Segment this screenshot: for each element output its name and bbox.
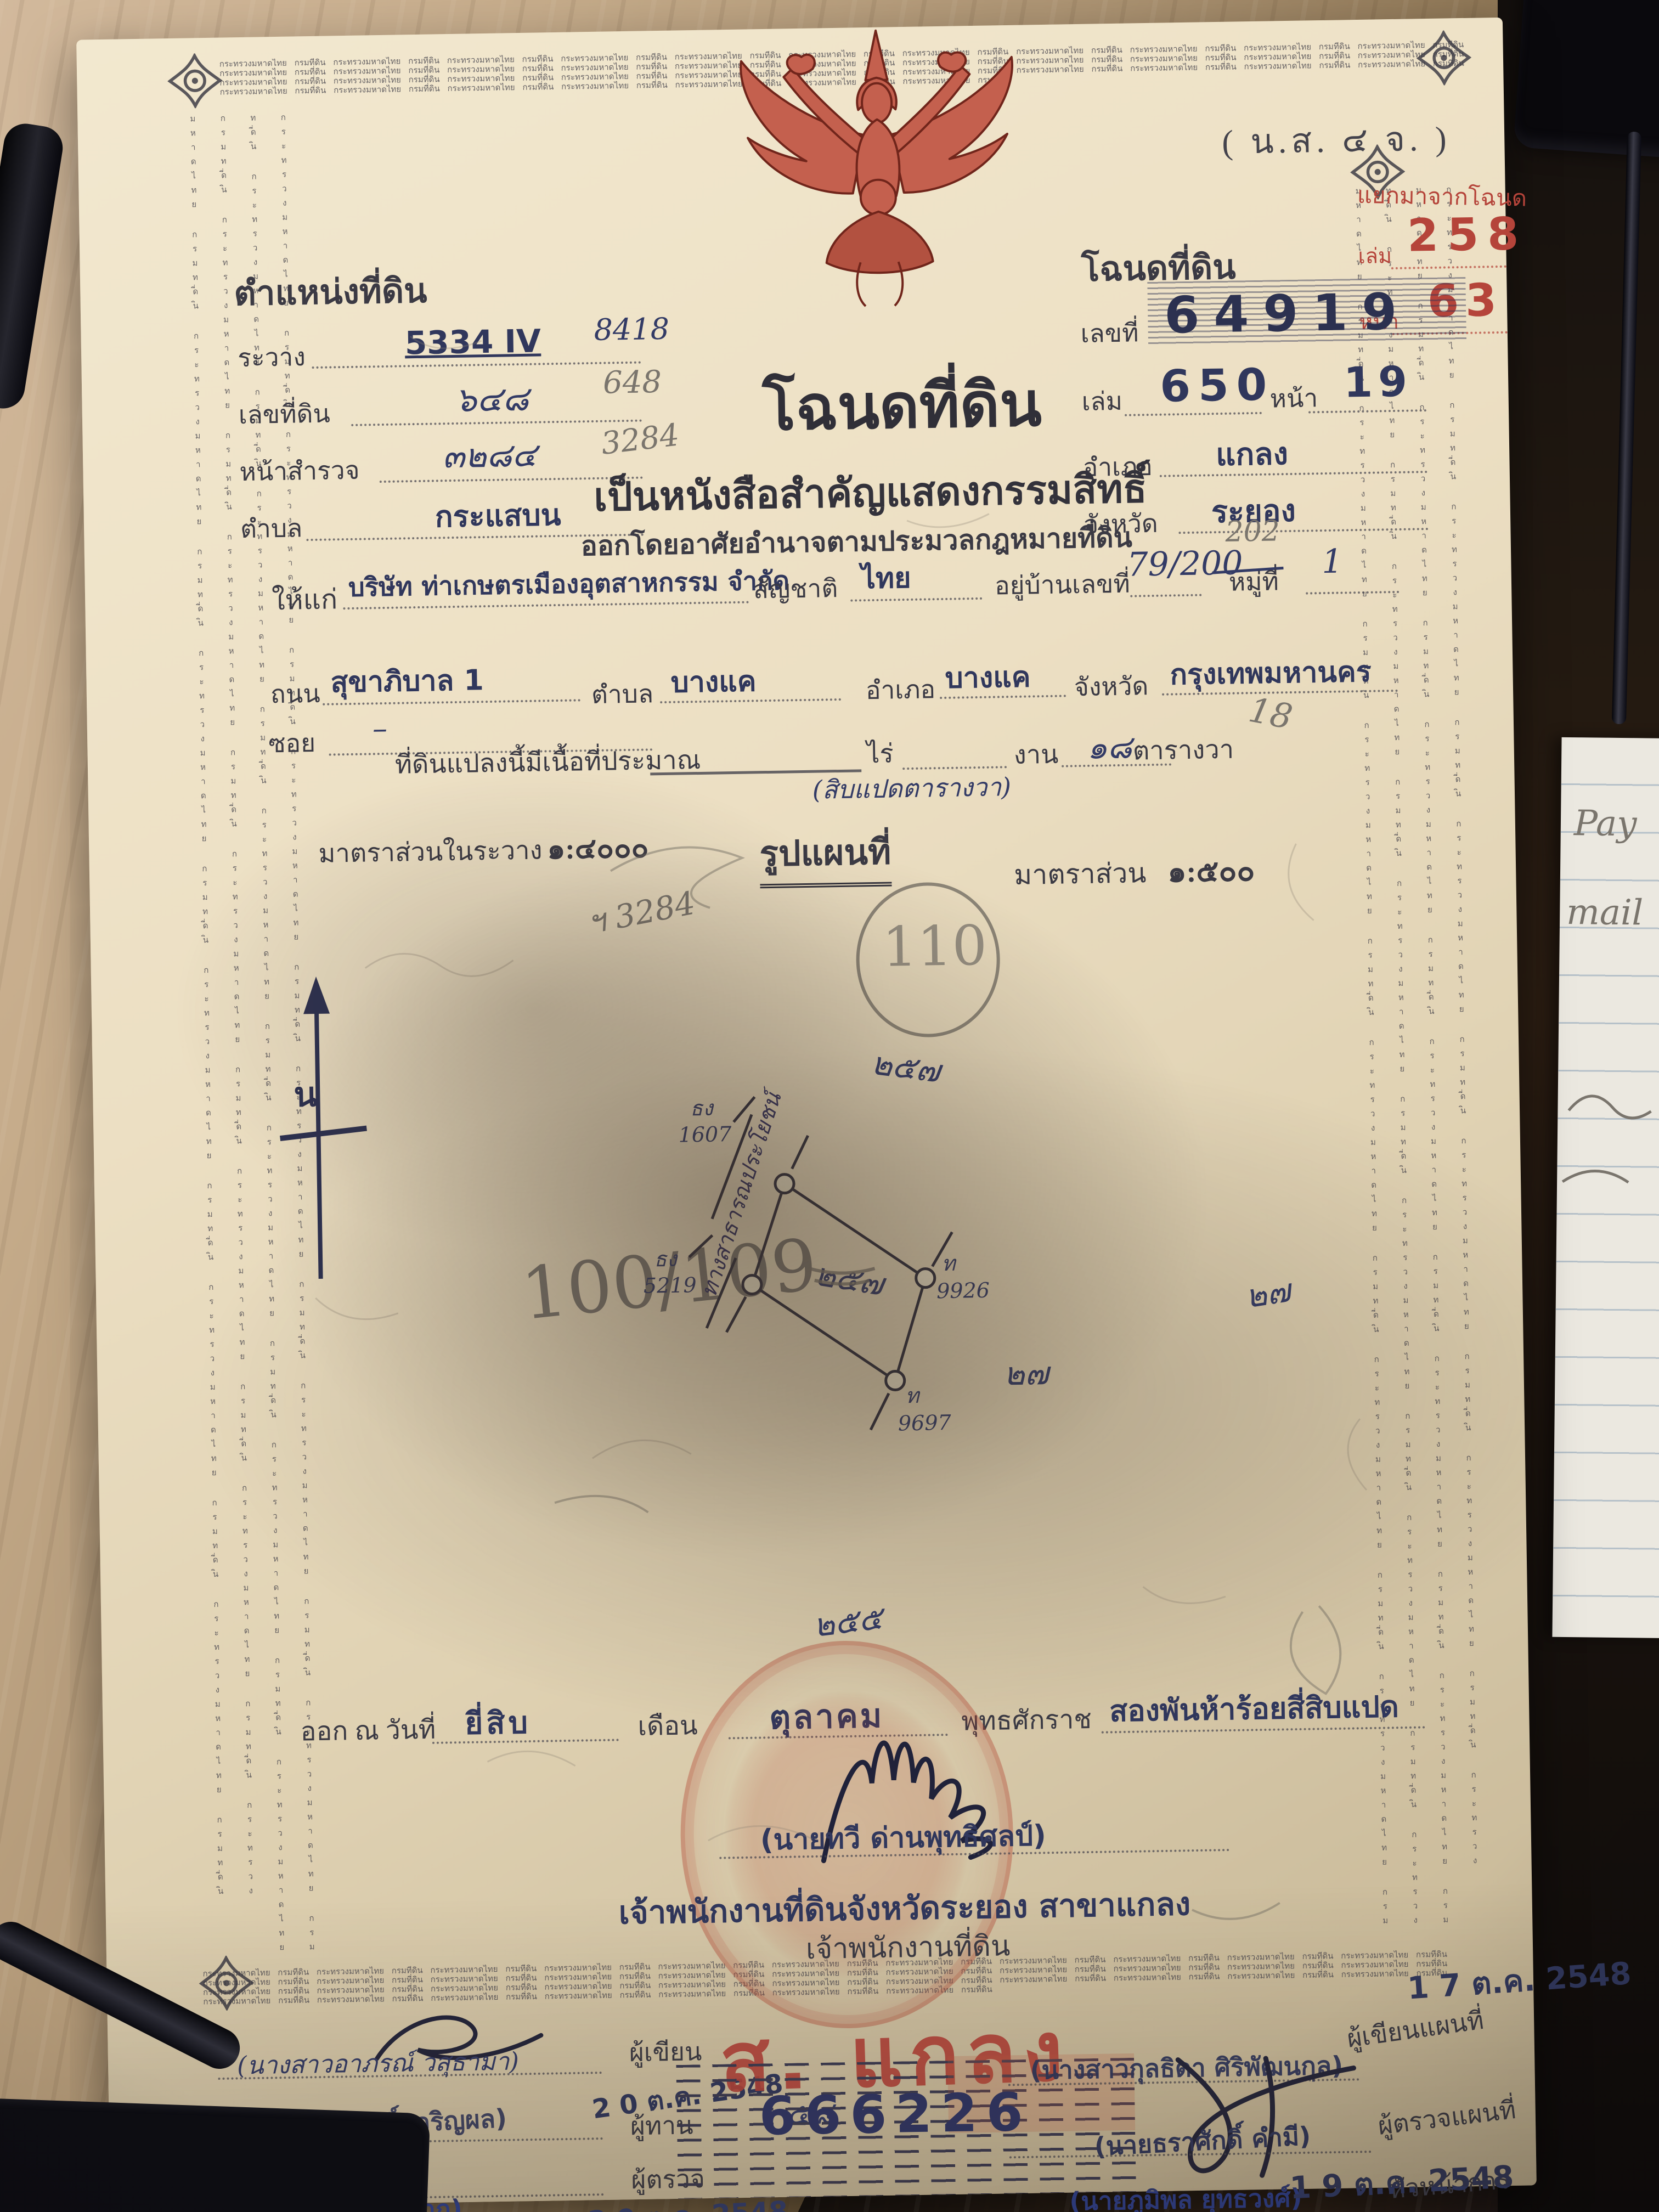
- notebook-scribble: [1556, 1066, 1659, 1287]
- tablet-edge: [0, 2097, 430, 2212]
- notebook-word: Pay: [1574, 803, 1637, 844]
- notebook-paper: Pay mail: [1552, 737, 1659, 1638]
- land-title-deed: กระทรวงมหาดไทย กรมที่ดิน กระทรวงมหาดไทย …: [76, 18, 1537, 2208]
- paper-fibers: [76, 18, 1537, 2208]
- notebook-word: mail: [1566, 892, 1644, 933]
- photo-scene: Pay mail กระทรวงมหาดไทย กรมที่ดิน กระทรว…: [0, 0, 1659, 2212]
